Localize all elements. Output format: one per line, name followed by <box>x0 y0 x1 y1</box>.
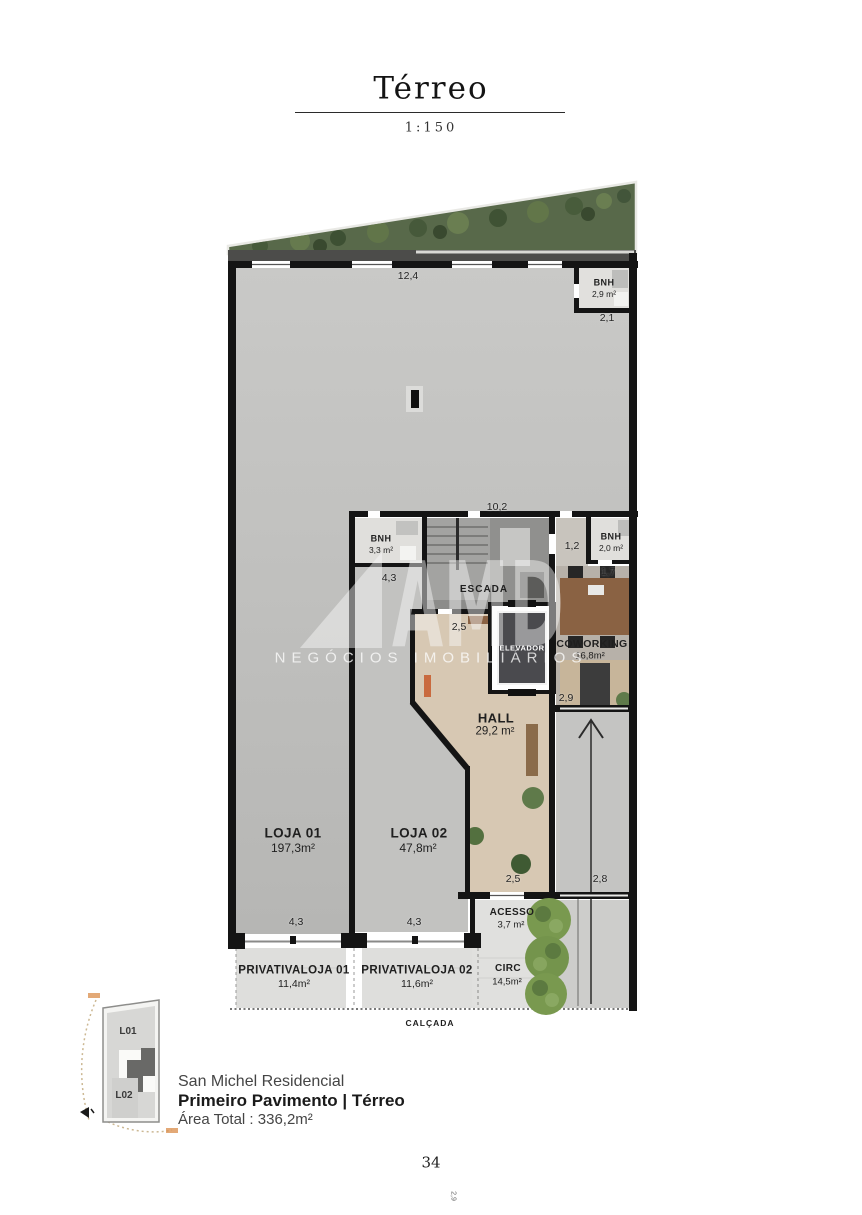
keyplan-unit-l01: L01 <box>119 1027 136 1037</box>
room-area-bnh-top: 2,9 m² <box>592 290 616 299</box>
green-area <box>228 182 636 254</box>
room-area-loja02: 47,8m² <box>399 842 436 854</box>
dim-label: 2,1 <box>600 313 615 324</box>
dim-label: 1,7 <box>601 567 616 578</box>
room-label-bnh-right: BNH <box>601 533 622 542</box>
dim-label: 4,3 <box>382 573 397 584</box>
room-label-coworking: COWORKING <box>556 639 627 650</box>
room-label-escada: ESCADA <box>460 585 508 595</box>
street-label: CALÇADA <box>405 1019 454 1028</box>
room-area-bnh-right: 2,0 m² <box>599 544 623 553</box>
room-label-bnh-top: BNH <box>594 279 615 288</box>
dim-label: 2,5 <box>452 622 467 633</box>
room-area-acesso: 3,7 m² <box>498 920 525 930</box>
room-area-privativa02: 11,6m² <box>401 979 433 990</box>
dim-label: 2,9 <box>559 693 574 704</box>
room-area-privativa01: 11,4m² <box>278 979 310 990</box>
room-label-acesso: ACESSO <box>490 908 535 918</box>
keyplan-unit-l02: L02 <box>115 1091 132 1101</box>
dim-label: 12,4 <box>398 271 418 282</box>
room-label-loja01: LOJA 01 <box>264 826 321 840</box>
room-area-loja01: 197,3m² <box>271 842 315 854</box>
room-label-circ: CIRC <box>495 964 521 974</box>
room-area-circ: 14,5m² <box>492 977 522 987</box>
room-label-bnh-mid: BNH <box>371 535 392 544</box>
north-arrow-icon <box>80 1107 89 1118</box>
room-label-privativa02: PRIVATIVALOJA 02 <box>361 965 472 977</box>
room-label-privativa01: PRIVATIVALOJA 01 <box>238 965 349 977</box>
column <box>406 386 423 412</box>
keyplan <box>80 993 178 1133</box>
dim-label: 2,8 <box>593 874 608 885</box>
dim-label: 2,5 <box>506 874 521 885</box>
project-name: San Michel Residencial <box>178 1073 344 1091</box>
private-terraces <box>236 948 472 1008</box>
room-area-bnh-mid: 3,3 m² <box>369 546 393 555</box>
page: Térreo 1:150 <box>0 0 862 1215</box>
margin-note: 2,9 <box>450 1191 457 1201</box>
dim-label: 1,2 <box>565 541 580 552</box>
room-area-hall: 29,2 m² <box>476 726 515 738</box>
room-label-loja02: LOJA 02 <box>390 826 447 840</box>
watermark-subtitle: NEGÓCIOS IMOBILIÁRIOS <box>275 650 588 667</box>
page-number: 34 <box>421 1156 440 1171</box>
total-area: Área Total : 336,2m² <box>178 1111 313 1128</box>
room-label-hall: HALL <box>478 712 514 725</box>
dim-label: 10,2 <box>487 502 507 513</box>
dim-label: 4,3 <box>289 917 304 928</box>
dim-label: 4,3 <box>407 917 422 928</box>
floor-title: Primeiro Pavimento | Térreo <box>178 1091 405 1111</box>
